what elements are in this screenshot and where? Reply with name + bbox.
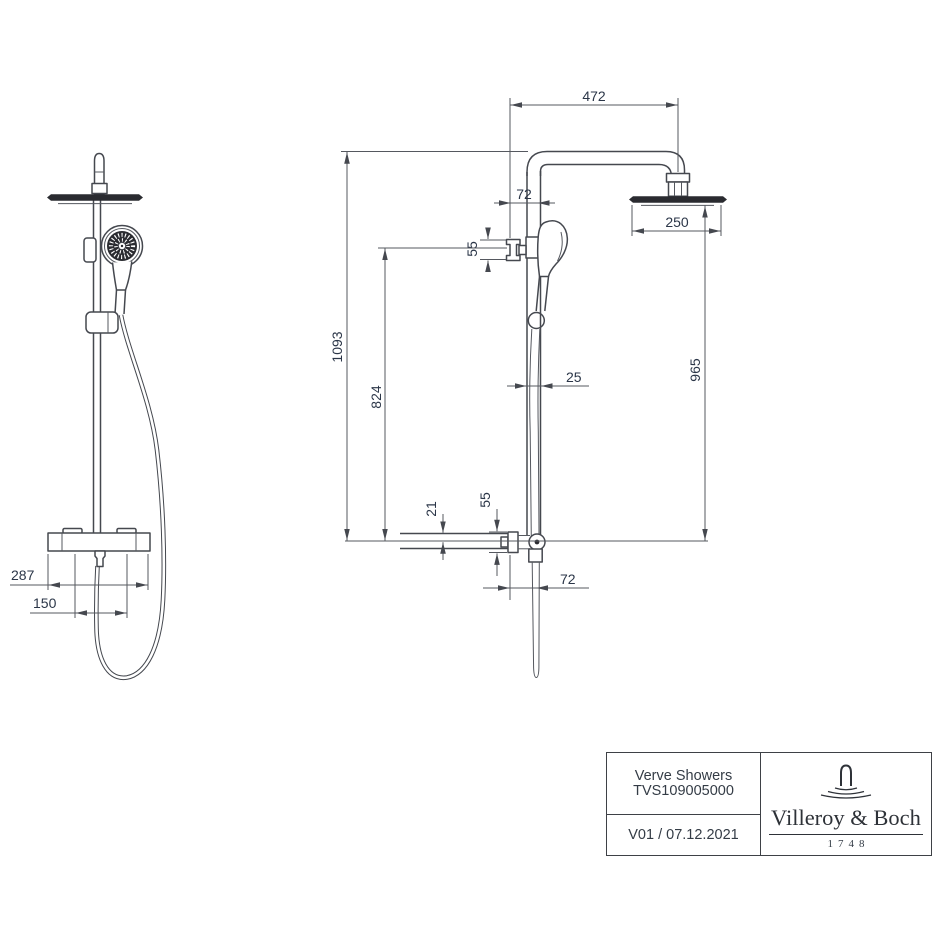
dim-label-rain-head-height: 965: [687, 358, 703, 382]
dim-label-inlet-offset: 21: [423, 501, 439, 517]
villeroy-boch-tap-icon: [811, 760, 881, 804]
dim-label-wall-bracket-height: 55: [477, 492, 493, 508]
dim-label-overall-height: 1093: [329, 331, 345, 362]
side-slider-ring: [528, 313, 544, 329]
side-view: 472 72 55 250 1093: [329, 88, 727, 678]
title-block-left-column: Verve Showers TVS109005000 V01 / 07.12.2…: [607, 753, 761, 855]
side-hose-end: [529, 549, 542, 678]
brand-name: Villeroy & Boch: [769, 805, 923, 835]
technical-drawing-page: 287 150: [0, 0, 945, 945]
dim-label-rain-head-width: 250: [665, 214, 689, 230]
front-holder-knob: [84, 238, 96, 262]
version-date: V01 / 07.12.2021: [628, 828, 738, 843]
side-wall-fitting: [400, 532, 545, 553]
brand-cell: Villeroy & Boch 1748: [761, 753, 931, 855]
article-number: TVS109005000: [633, 784, 734, 799]
side-arm-collar: [667, 174, 690, 183]
brand-year: 1748: [823, 838, 870, 850]
front-hand-shower: [102, 226, 143, 315]
side-hose: [530, 329, 540, 548]
version-cell: V01 / 07.12.2021: [607, 815, 760, 855]
side-head-nut: [669, 182, 688, 196]
front-cap-collar: [92, 184, 107, 194]
dim-label-rail-diameter: 25: [566, 369, 582, 385]
product-line: Verve Showers: [635, 769, 733, 784]
front-rain-head: [47, 194, 143, 200]
front-thermostat: [48, 529, 150, 567]
dim-label-arm-reach: 472: [582, 88, 606, 104]
dim-label-holder-knob-height: 55: [464, 241, 480, 257]
title-block: Verve Showers TVS109005000 V01 / 07.12.2…: [606, 752, 932, 856]
product-info-cell: Verve Showers TVS109005000: [607, 753, 760, 815]
dim-label-trim-width: 287: [11, 567, 35, 583]
dim-label-holder-height: 824: [368, 385, 384, 409]
front-hose: [96, 315, 164, 678]
front-slider-bracket: [86, 312, 118, 333]
front-hose-outlet: [95, 551, 105, 567]
front-view: 287 150: [10, 154, 164, 678]
side-shower-arm-inner: [541, 165, 672, 178]
dim-label-wall-to-rail: 72: [516, 186, 532, 202]
side-rain-head: [629, 196, 727, 202]
dim-label-wall-to-hose: 72: [560, 571, 576, 587]
front-view-dimensions: 287 150: [10, 554, 148, 618]
dim-label-connection-spacing: 150: [33, 595, 57, 611]
